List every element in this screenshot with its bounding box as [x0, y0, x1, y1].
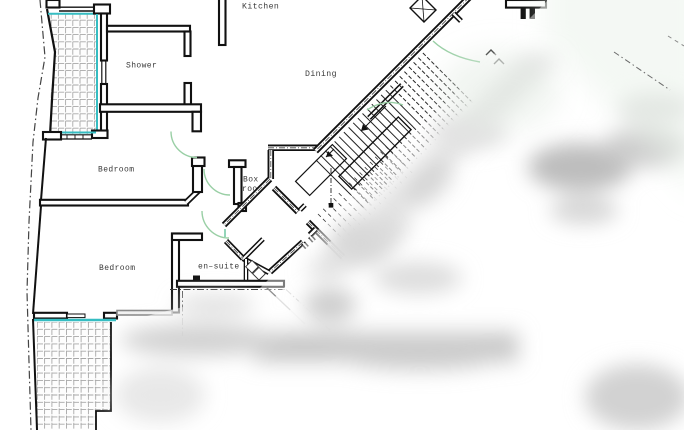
svg-text:Box: Box [243, 176, 259, 185]
svg-text:en–suite: en–suite [198, 263, 240, 272]
svg-text:Bedroom: Bedroom [99, 264, 135, 273]
svg-text:Bedroom: Bedroom [98, 166, 134, 175]
svg-text:Shower: Shower [126, 62, 157, 71]
svg-text:Kitchen: Kitchen [242, 2, 279, 12]
svg-text:Dining: Dining [305, 69, 337, 79]
